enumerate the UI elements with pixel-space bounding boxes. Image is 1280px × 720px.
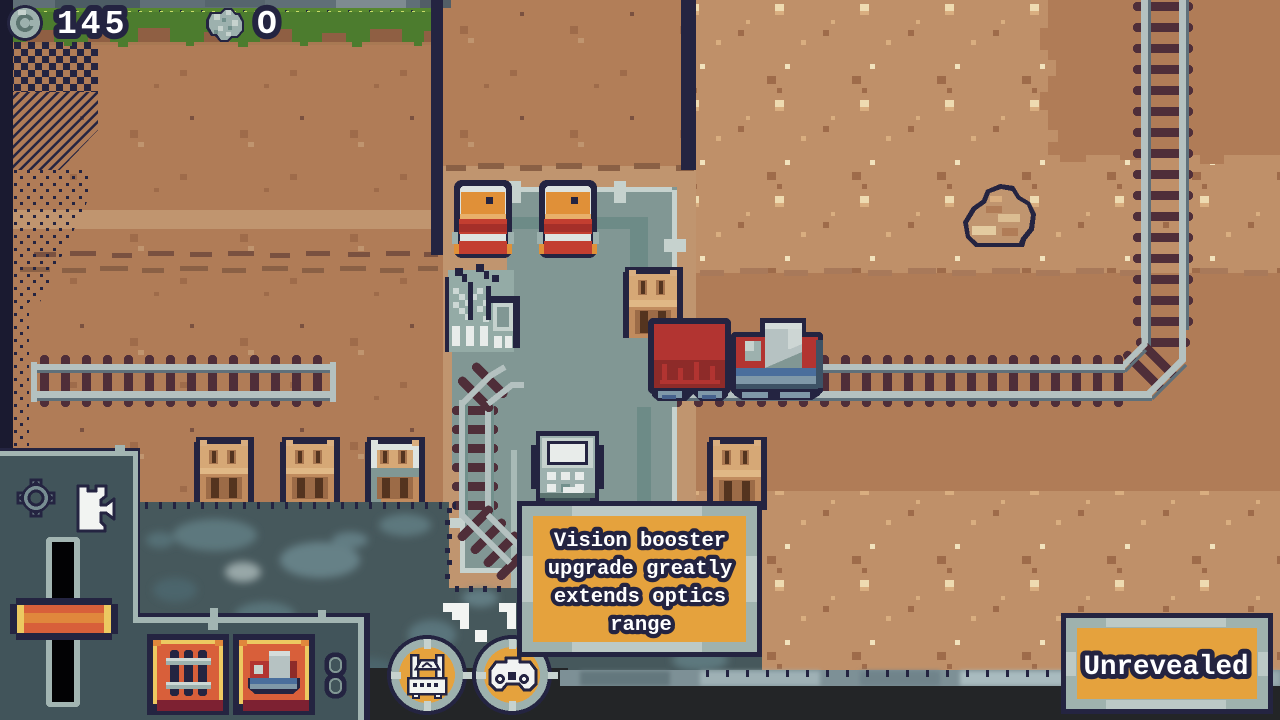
svg-text:O: O — [257, 6, 277, 43]
svg-text:145: 145 — [57, 6, 128, 43]
svg-text:upgrade greatly: upgrade greatly — [548, 558, 733, 581]
svg-text:Vision booster: Vision booster — [554, 530, 726, 553]
svg-text:Unrevealed: Unrevealed — [1083, 652, 1248, 683]
svg-text:range: range — [610, 614, 672, 637]
svg-text:extends optics: extends optics — [554, 586, 726, 609]
